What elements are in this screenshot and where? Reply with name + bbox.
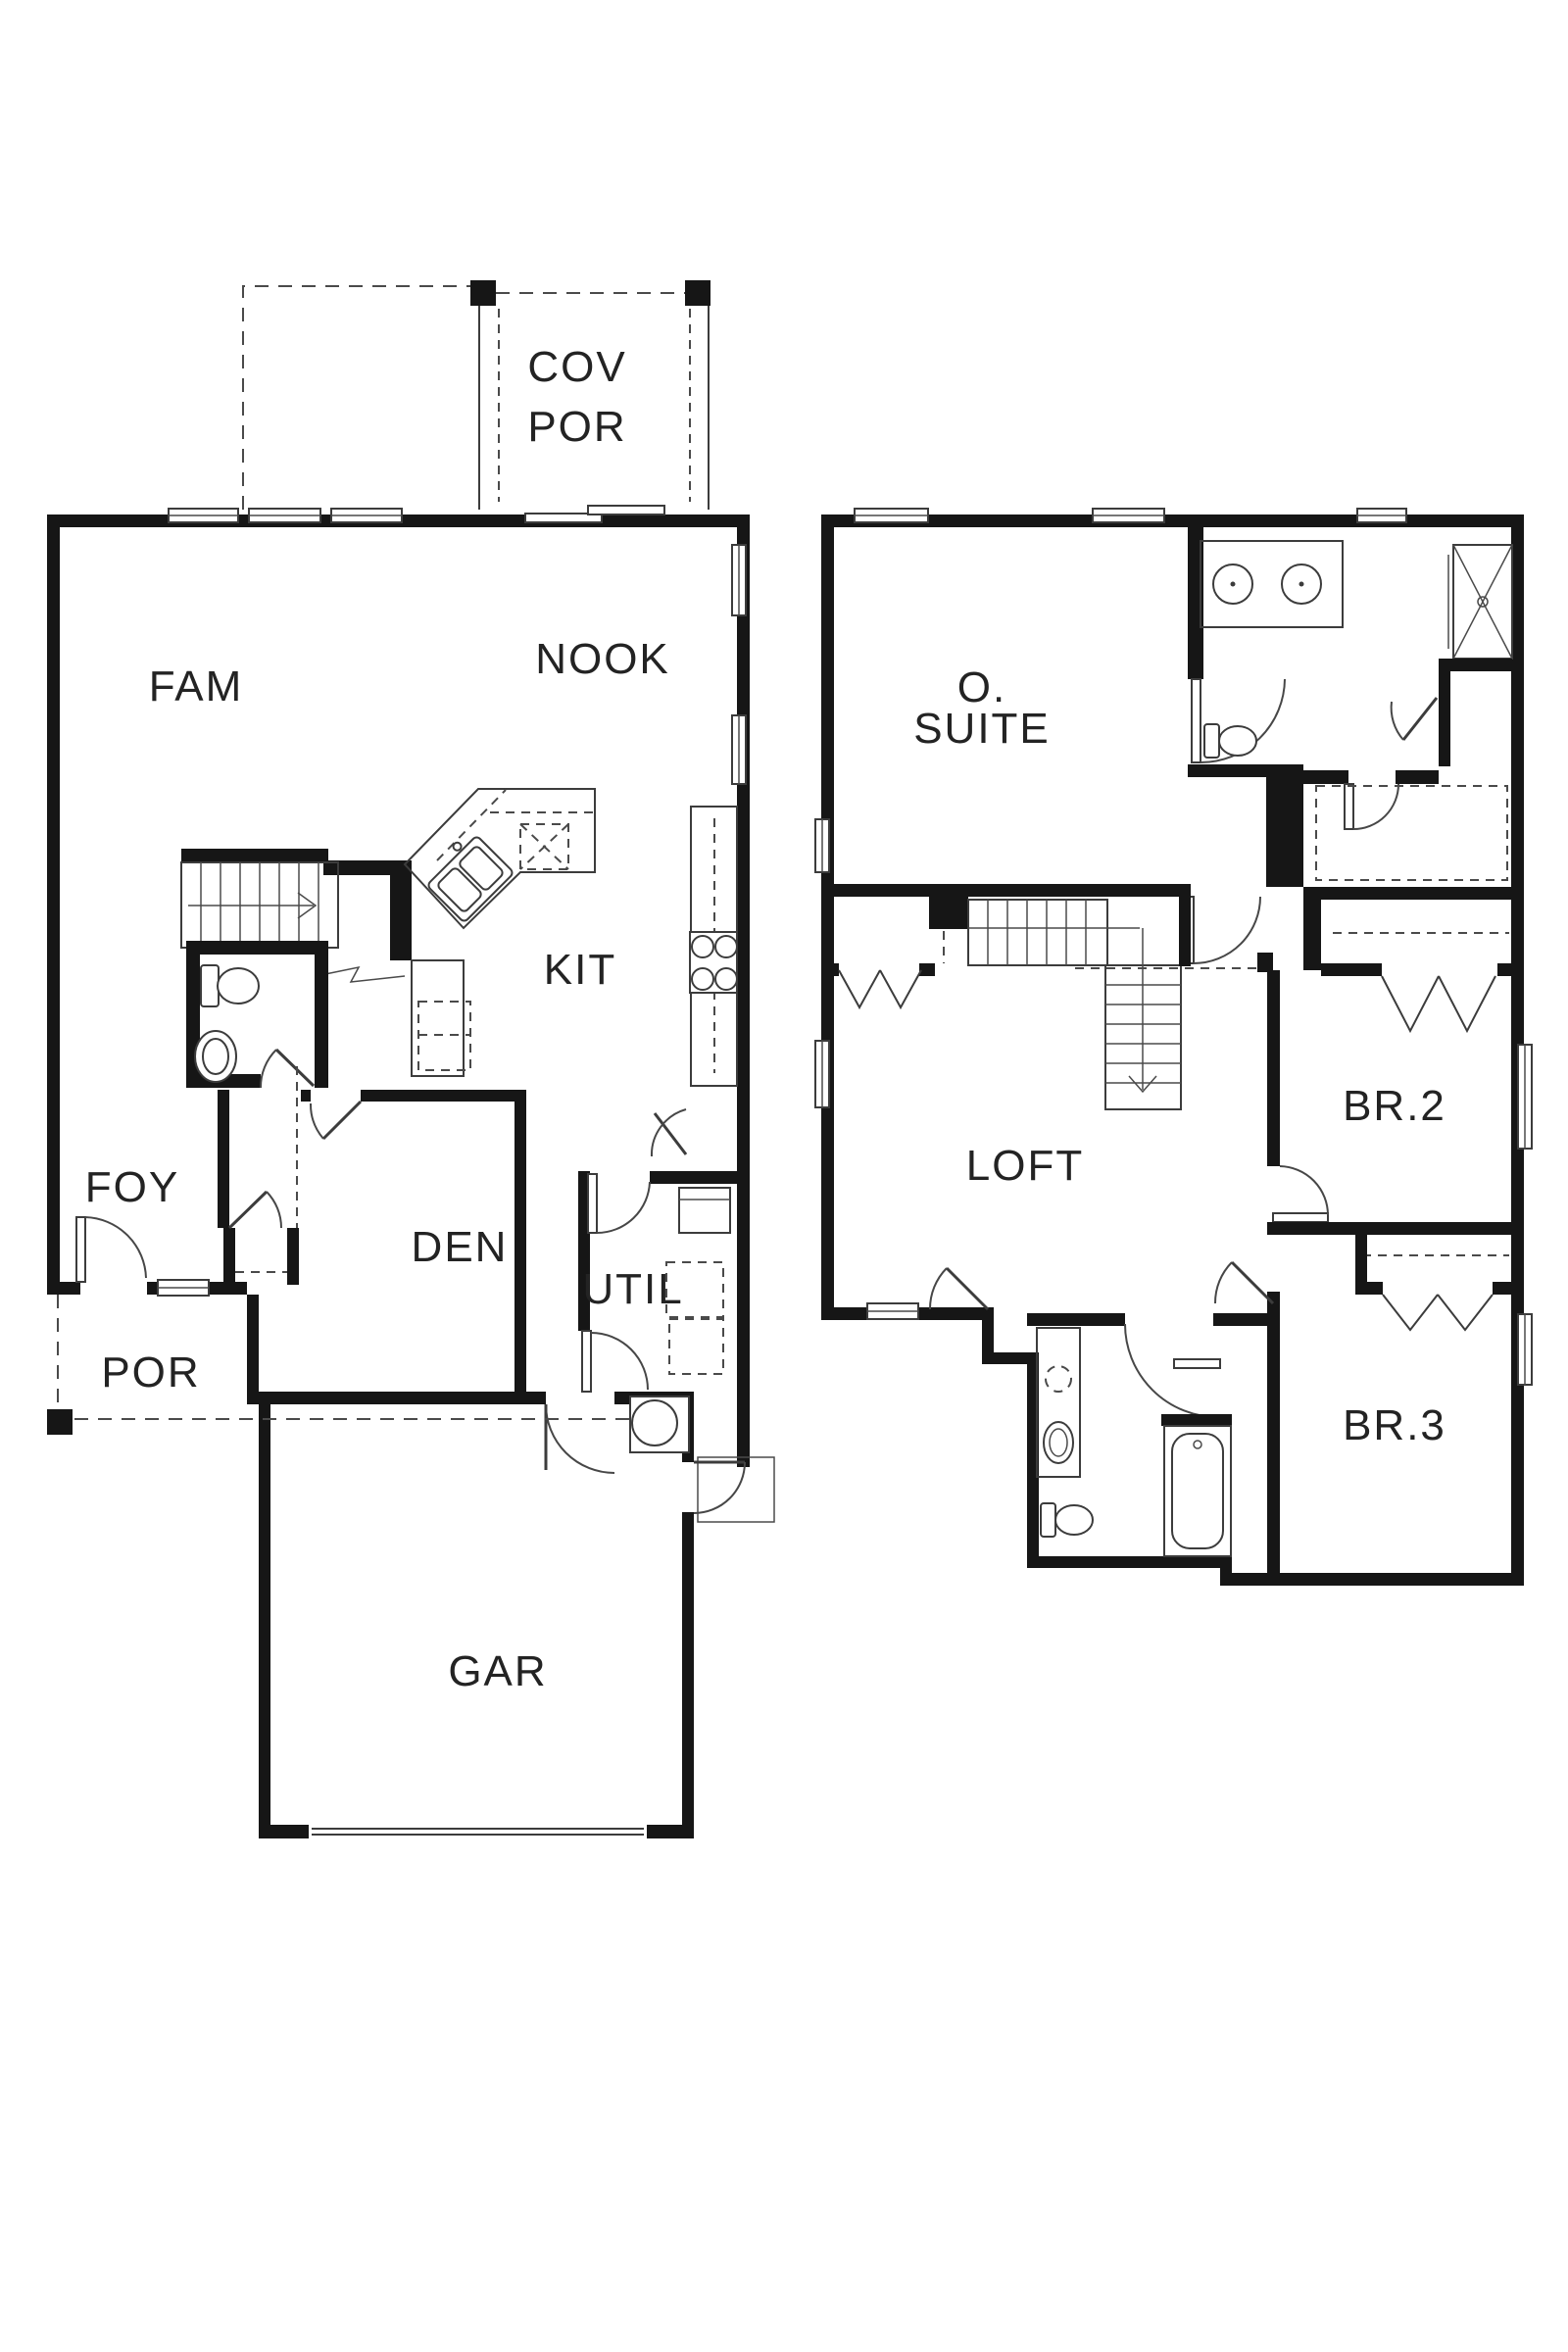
first-floor-plan: COV POR: [47, 280, 774, 1838]
second-floor-plan: O. SUITE LOFT BR.2 BR.3: [815, 509, 1532, 1586]
stove-icon: [690, 932, 737, 993]
door: [1215, 1262, 1273, 1303]
hall-bath: [1027, 1313, 1267, 1556]
room-label-foy: FOY: [85, 1163, 179, 1211]
vanity-icon: [1037, 1328, 1080, 1477]
window: [169, 509, 238, 522]
patio-outline: [243, 286, 477, 510]
window: [732, 545, 746, 615]
door: [1345, 784, 1398, 829]
window: [158, 1280, 209, 1296]
window: [815, 819, 829, 872]
door: [261, 1050, 314, 1088]
kitchen-sink-icon: [419, 828, 514, 922]
door: [652, 1109, 686, 1156]
toilet-icon: [1041, 1503, 1093, 1537]
owner-suite-walls: [821, 884, 1260, 1007]
water-heater-icon: [630, 1396, 689, 1452]
room-label-por: POR: [101, 1348, 200, 1396]
room-label-den: DEN: [412, 1223, 509, 1271]
toilet-icon: [201, 965, 259, 1006]
bifold-closet-doors: [1383, 1295, 1493, 1330]
toilet-icon: [1204, 724, 1256, 758]
garage-door: [312, 1829, 644, 1835]
room-label-br3: BR.3: [1343, 1401, 1446, 1449]
door: [582, 1331, 648, 1392]
bifold-closet-doors: [839, 970, 921, 1007]
garage-entry-door: [546, 1404, 614, 1473]
room-label-nook: NOOK: [535, 635, 670, 683]
room-label-loft: LOFT: [966, 1142, 1084, 1190]
sink-icon: [195, 1031, 236, 1082]
window: [855, 509, 928, 522]
first-floor-stairs-icon: [181, 849, 412, 982]
second-floor-windows: [815, 509, 1532, 1385]
room-label-fam: FAM: [149, 662, 243, 710]
room-label-gar: GAR: [448, 1647, 547, 1695]
room-label-cov-por-2: POR: [527, 403, 626, 451]
master-bath: [1188, 527, 1512, 887]
door: [1273, 1166, 1328, 1222]
window: [1518, 1045, 1532, 1149]
door: [588, 1174, 650, 1233]
side-stoop: [694, 1457, 774, 1522]
owner-suite-door: [1185, 897, 1260, 963]
window: [732, 715, 746, 784]
porch-post: [685, 280, 710, 306]
linen-closet-door: [1392, 698, 1437, 740]
floor-plan-canvas: COV POR: [0, 0, 1568, 2352]
bathtub-icon: [1164, 1426, 1231, 1556]
window: [867, 1303, 918, 1319]
powder-bath: [186, 941, 328, 1088]
room-label-br2: BR.2: [1343, 1082, 1446, 1130]
porch-post: [47, 1409, 73, 1435]
dishwasher-icon: [520, 824, 568, 869]
window: [1093, 509, 1164, 522]
loft-door: [930, 1268, 988, 1309]
window: [815, 1041, 829, 1107]
door: [1125, 1324, 1220, 1417]
shower-icon: [1448, 545, 1512, 659]
front-door: [76, 1217, 146, 1282]
double-vanity-icon: [1200, 541, 1343, 627]
porch-post: [470, 280, 496, 306]
walk-in-closet: [1303, 770, 1524, 970]
covered-porch: COV POR: [470, 280, 710, 510]
room-label-kit: KIT: [544, 946, 616, 994]
washer-icon: [679, 1188, 730, 1233]
window: [331, 509, 402, 522]
second-floor-stairs-icon: [968, 884, 1273, 1109]
window: [1357, 509, 1406, 522]
room-label-util: UTIL: [582, 1265, 683, 1313]
room-label-o-suite-2: SUITE: [913, 705, 1051, 753]
bifold-closet-doors: [1382, 976, 1495, 1031]
window: [1518, 1314, 1532, 1385]
room-label-cov-por-1: COV: [527, 343, 626, 391]
door: [311, 1102, 361, 1139]
foyer-closet: [223, 1192, 299, 1285]
window: [249, 509, 320, 522]
